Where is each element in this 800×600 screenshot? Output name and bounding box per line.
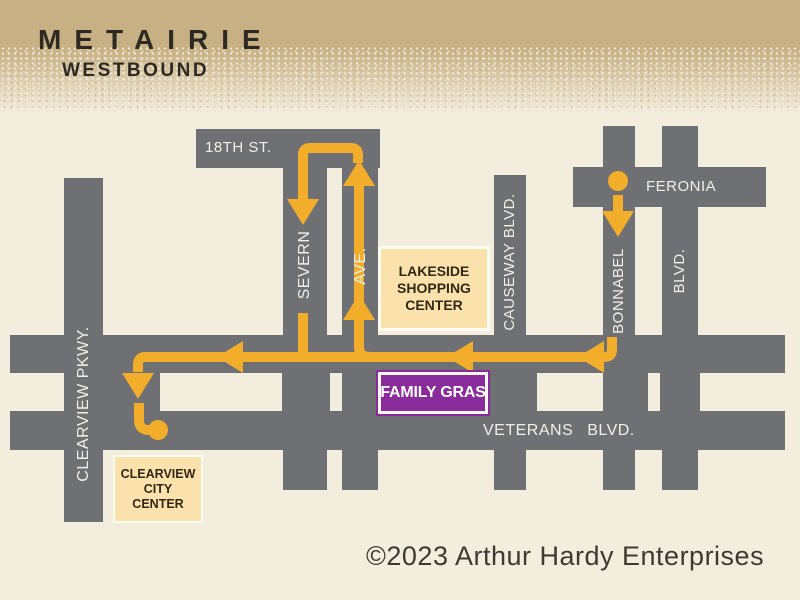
copyright-text: ©2023 Arthur Hardy Enterprises — [366, 541, 764, 572]
landmark-clearview-city-center: CLEARVIEW CITY CENTER — [113, 455, 203, 523]
route-start-dot — [608, 171, 628, 191]
street-label-bonnabel: BONNABEL — [609, 236, 629, 346]
route-west-arrow-head — [578, 341, 604, 373]
street-label-causeway-blvd: CAUSEWAY BLVD. — [500, 187, 520, 337]
route-up-arrow-head — [343, 160, 375, 186]
route-end-dot — [148, 420, 168, 440]
parade-route-map: METAIRIE WESTBOUND — [0, 0, 800, 600]
street-label-severn: SEVERN — [295, 220, 315, 310]
landmark-label-line: LAKESIDE — [399, 263, 470, 280]
route-west-arrow-head — [217, 341, 243, 373]
street-label-18th-st: 18TH ST. — [205, 139, 272, 156]
family-gras-label: FAMILY GRAS — [380, 384, 485, 402]
route-up-arrow-head — [343, 294, 375, 320]
street-label-feronia: FERONIA — [646, 178, 716, 195]
landmark-label-line: CENTER — [405, 297, 463, 314]
route-down-arrow-head — [122, 373, 154, 399]
street-label-ave: AVE. — [351, 236, 371, 296]
landmark-family-gras: FAMILY GRAS — [378, 372, 488, 414]
street-label-veterans-blvd: VETERANS BLVD. — [483, 422, 635, 440]
landmark-label-line: CENTER — [132, 497, 183, 512]
route-start-arrow-head — [602, 211, 634, 237]
route-west-arrow-head — [447, 341, 473, 373]
route-18th-st-connector — [303, 148, 358, 199]
route-main-line — [138, 337, 612, 372]
street-label-clearview-pkwy: CLEARVIEW PKWY. — [74, 319, 94, 489]
landmark-label-line: SHOPPING — [397, 280, 471, 297]
landmark-label-line: CLEARVIEW — [121, 467, 196, 482]
landmark-lakeside-shopping-center: LAKESIDE SHOPPING CENTER — [378, 246, 490, 331]
landmark-label-line: CITY — [144, 482, 172, 497]
street-label-blvd: BLVD. — [670, 236, 690, 306]
